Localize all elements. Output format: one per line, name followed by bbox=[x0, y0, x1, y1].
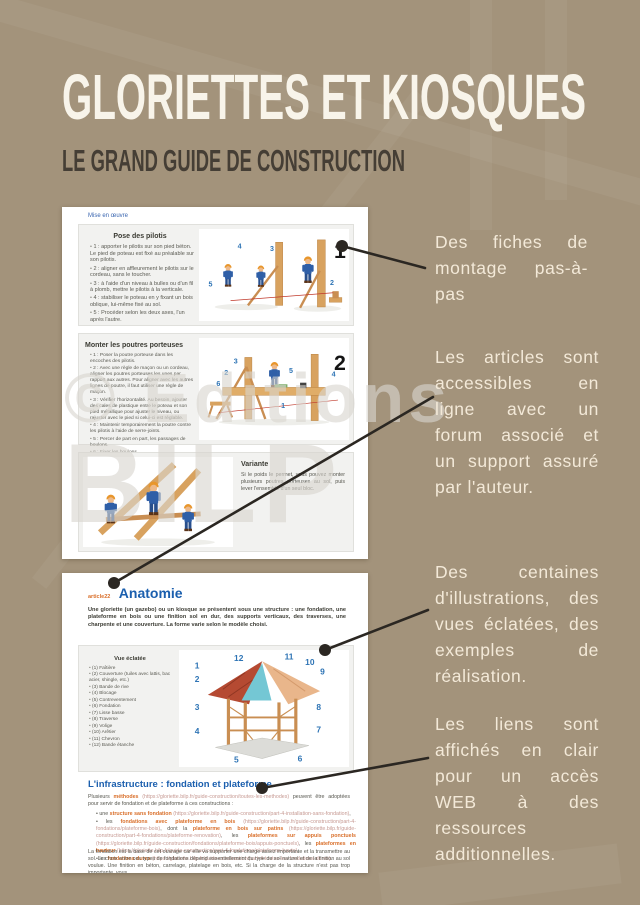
infra-link[interactable]: méthodes bbox=[113, 794, 138, 800]
article-intro: Une gloriette (un gazebo) ou un kiosque … bbox=[88, 607, 346, 629]
article-title: Anatomie bbox=[119, 585, 183, 601]
page-subtitle: LE GRAND GUIDE DE CONSTRUCTION bbox=[62, 143, 405, 178]
fig-number: 5 bbox=[208, 280, 212, 288]
fig-number: 5 bbox=[234, 754, 239, 764]
title-block: GLORIETTES ET KIOSQUES LE GRAND GUIDE DE… bbox=[0, 0, 640, 185]
part-item: (11) Chevron bbox=[89, 737, 175, 743]
part-item: (8) Traverse bbox=[89, 717, 175, 723]
part-item: (2) Couverture (tuiles avec lattis, bac … bbox=[89, 672, 175, 684]
callout-liens-web: Les liens sont affichés en clair pour un… bbox=[435, 711, 599, 867]
step: 4 : Maintenir temporairement la poutre c… bbox=[90, 423, 195, 435]
fig-number: 2 bbox=[330, 279, 334, 287]
illustration-poutres-porteuses: 3 2 5 4 6 1 2 bbox=[199, 338, 349, 440]
article-tag: article22 bbox=[88, 594, 110, 600]
parts-list: (1) Faîtière (2) Couverture (tuiles avec… bbox=[85, 666, 175, 749]
fig-number: 12 bbox=[234, 653, 244, 663]
fig-number: 3 bbox=[270, 245, 274, 253]
step: 3 : Vérifier l'horizontalité. Au besoin,… bbox=[90, 398, 195, 422]
fig-number: 9 bbox=[320, 666, 325, 676]
variante-text: Si le poids le permet, vous pouvez monte… bbox=[241, 472, 345, 493]
guide-page-montage: Mise en œuvre Pose des pilotis 1 : appor… bbox=[62, 207, 368, 559]
fig-number: 4 bbox=[238, 243, 242, 251]
step: 4 : stabiliser le poteau en y fixant un … bbox=[90, 295, 195, 308]
step: 1 : apporter le pilotis sur son pied bét… bbox=[90, 244, 195, 264]
infra-link[interactable]: structure sans fondation bbox=[110, 811, 172, 817]
step: 1 : Poser la poutre porteuse dans les en… bbox=[90, 353, 195, 365]
poster: GLORIETTES ET KIOSQUES LE GRAND GUIDE DE… bbox=[0, 0, 640, 905]
section-variante: Variante Si le poids le permet, vous pou… bbox=[78, 452, 354, 552]
fig-number: 5 bbox=[289, 367, 293, 375]
part-item: (12) Bande étanche bbox=[89, 743, 175, 749]
fig-number: 6 bbox=[216, 380, 220, 388]
step-list: 1 : Poser la poutre porteuse dans les en… bbox=[85, 353, 195, 456]
fig-number: 2 bbox=[224, 369, 228, 377]
infra-link[interactable]: plateforme en bois sur patins bbox=[193, 826, 283, 832]
fig-number: 3 bbox=[195, 702, 200, 712]
callout-articles-en-ligne: Les articles sont accessibles en ligne a… bbox=[435, 344, 599, 500]
step-list: 1 : apporter le pilotis sur son pied bét… bbox=[85, 244, 195, 324]
section-title: Monter les poutres porteuses bbox=[85, 342, 195, 349]
step: 5 : Procéder selon les deux axes, l'un a… bbox=[90, 310, 195, 323]
fig-number: 6 bbox=[298, 753, 303, 763]
infra-link[interactable]: plateformes sur appuis ponctuels bbox=[248, 833, 356, 839]
part-item: (5) Contreventement bbox=[89, 698, 175, 704]
infra-footer: La fondation est la base de cet ouvrage … bbox=[88, 849, 350, 873]
part-item: (7) Lisse basse bbox=[89, 711, 175, 717]
vue-eclatee-box: Vue éclatée (1) Faîtière (2) Couverture … bbox=[78, 645, 354, 772]
illustration-gazebo-exploded: 1 2 3 4 5 6 7 8 9 10 11 12 bbox=[179, 650, 349, 767]
infra-item: une structure sans fondation (https://gl… bbox=[96, 811, 356, 818]
fig-number: 11 bbox=[285, 651, 294, 661]
variante-title: Variante bbox=[241, 461, 345, 468]
fiche-number: 2 bbox=[334, 351, 346, 375]
fig-number: 7 bbox=[316, 724, 321, 734]
vue-eclatee-label: Vue éclatée bbox=[85, 656, 175, 662]
mise-en-oeuvre-link[interactable]: Mise en œuvre bbox=[88, 213, 128, 219]
illustration-pose-pilotis: 4 3 5 2 1 bbox=[199, 229, 349, 321]
fig-number: 8 bbox=[316, 702, 321, 712]
step: 2 : aligner en affleurement le pilotis s… bbox=[90, 266, 195, 279]
fig-number: 3 bbox=[234, 358, 238, 366]
callout-fiches-montage: Des fiches de montage pas-à-pas bbox=[435, 229, 588, 307]
fig-number: 1 bbox=[281, 402, 285, 410]
callout-illustrations: Des centaines d'illustrations, des vues … bbox=[435, 559, 599, 689]
fiche-number: 1 bbox=[334, 239, 346, 263]
step: 5 : Percer de part en part, les passages… bbox=[90, 437, 195, 449]
infra-title: L'infrastructure : fondation et platefor… bbox=[88, 779, 272, 790]
part-item: (10) Arêtier bbox=[89, 730, 175, 736]
infra-intro: Plusieurs méthodes (https://gloriette.bi… bbox=[88, 794, 350, 808]
guide-page-anatomie: article22 Anatomie Une gloriette (un gaz… bbox=[62, 573, 368, 873]
infra-link[interactable]: fondations avec plateforme en bois bbox=[121, 819, 236, 825]
illustration-variante bbox=[83, 457, 233, 547]
step: 2 : Avec une règle de maçon ou un cordea… bbox=[90, 366, 195, 396]
fig-number: 4 bbox=[195, 726, 200, 736]
page-title: GLORIETTES ET KIOSQUES bbox=[62, 61, 586, 133]
part-item: (9) Volige bbox=[89, 724, 175, 730]
section-pose-pilotis: Pose des pilotis 1 : apporter le pilotis… bbox=[78, 224, 354, 326]
fig-number: 2 bbox=[195, 674, 200, 684]
fig-number: 1 bbox=[195, 661, 200, 671]
section-title: Pose des pilotis bbox=[85, 233, 195, 240]
section-poutres-porteuses: Monter les poutres porteuses 1 : Poser l… bbox=[78, 333, 354, 445]
step: 3 : à l'aide d'un niveau à bulles ou d'u… bbox=[90, 281, 195, 294]
fig-number: 10 bbox=[305, 657, 315, 667]
part-item: (6) Fondation bbox=[89, 704, 175, 710]
part-item: (4) Blocage bbox=[89, 691, 175, 697]
